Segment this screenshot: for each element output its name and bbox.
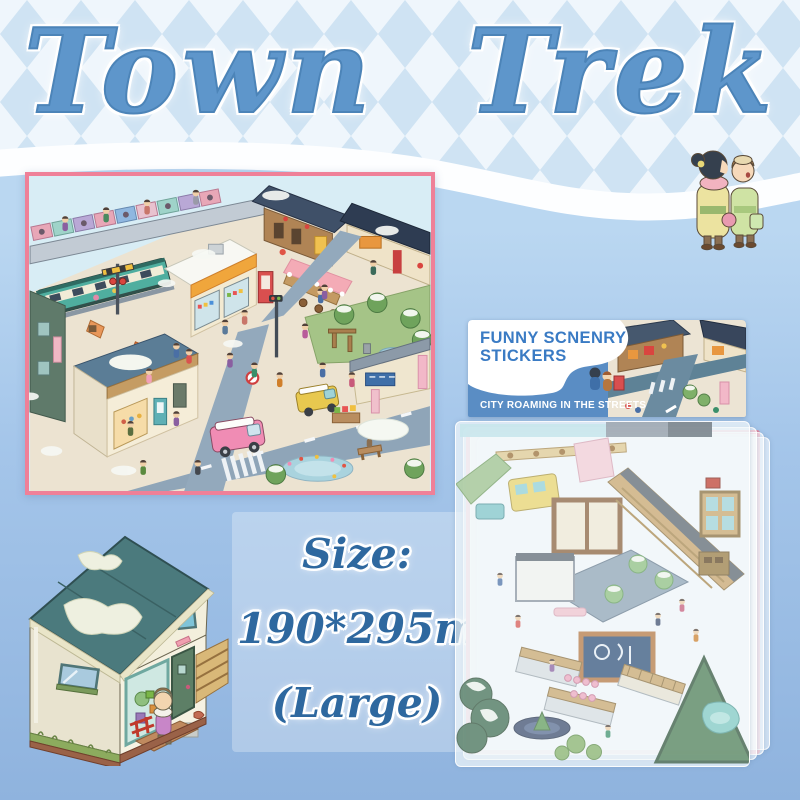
size-info: Size: 190*295mm (Large) xyxy=(237,530,477,727)
page-title: Town Trek xyxy=(0,6,800,139)
size-dimensions: 190*295mm xyxy=(237,604,477,653)
two-kimono-characters-icon xyxy=(684,140,770,252)
sticker-package-header: FUNNY SCNENRY STICKERS CITY ROAMING IN T… xyxy=(468,320,746,417)
package-title-line2: STICKERS xyxy=(480,347,626,365)
product-poster: Town Trek xyxy=(0,0,800,800)
package-title-line1: FUNNY SCNENRY xyxy=(480,329,626,347)
sticker-sheet-front xyxy=(455,421,750,767)
package-subtitle: CITY ROAMING IN THE STREETS xyxy=(480,400,646,411)
package-title: FUNNY SCNENRY STICKERS xyxy=(480,329,626,365)
left-building xyxy=(30,291,65,422)
main-town-illustration xyxy=(25,172,435,495)
house-illustration xyxy=(18,526,230,766)
size-variant: (Large) xyxy=(237,679,477,727)
size-label: Size: xyxy=(237,530,477,578)
